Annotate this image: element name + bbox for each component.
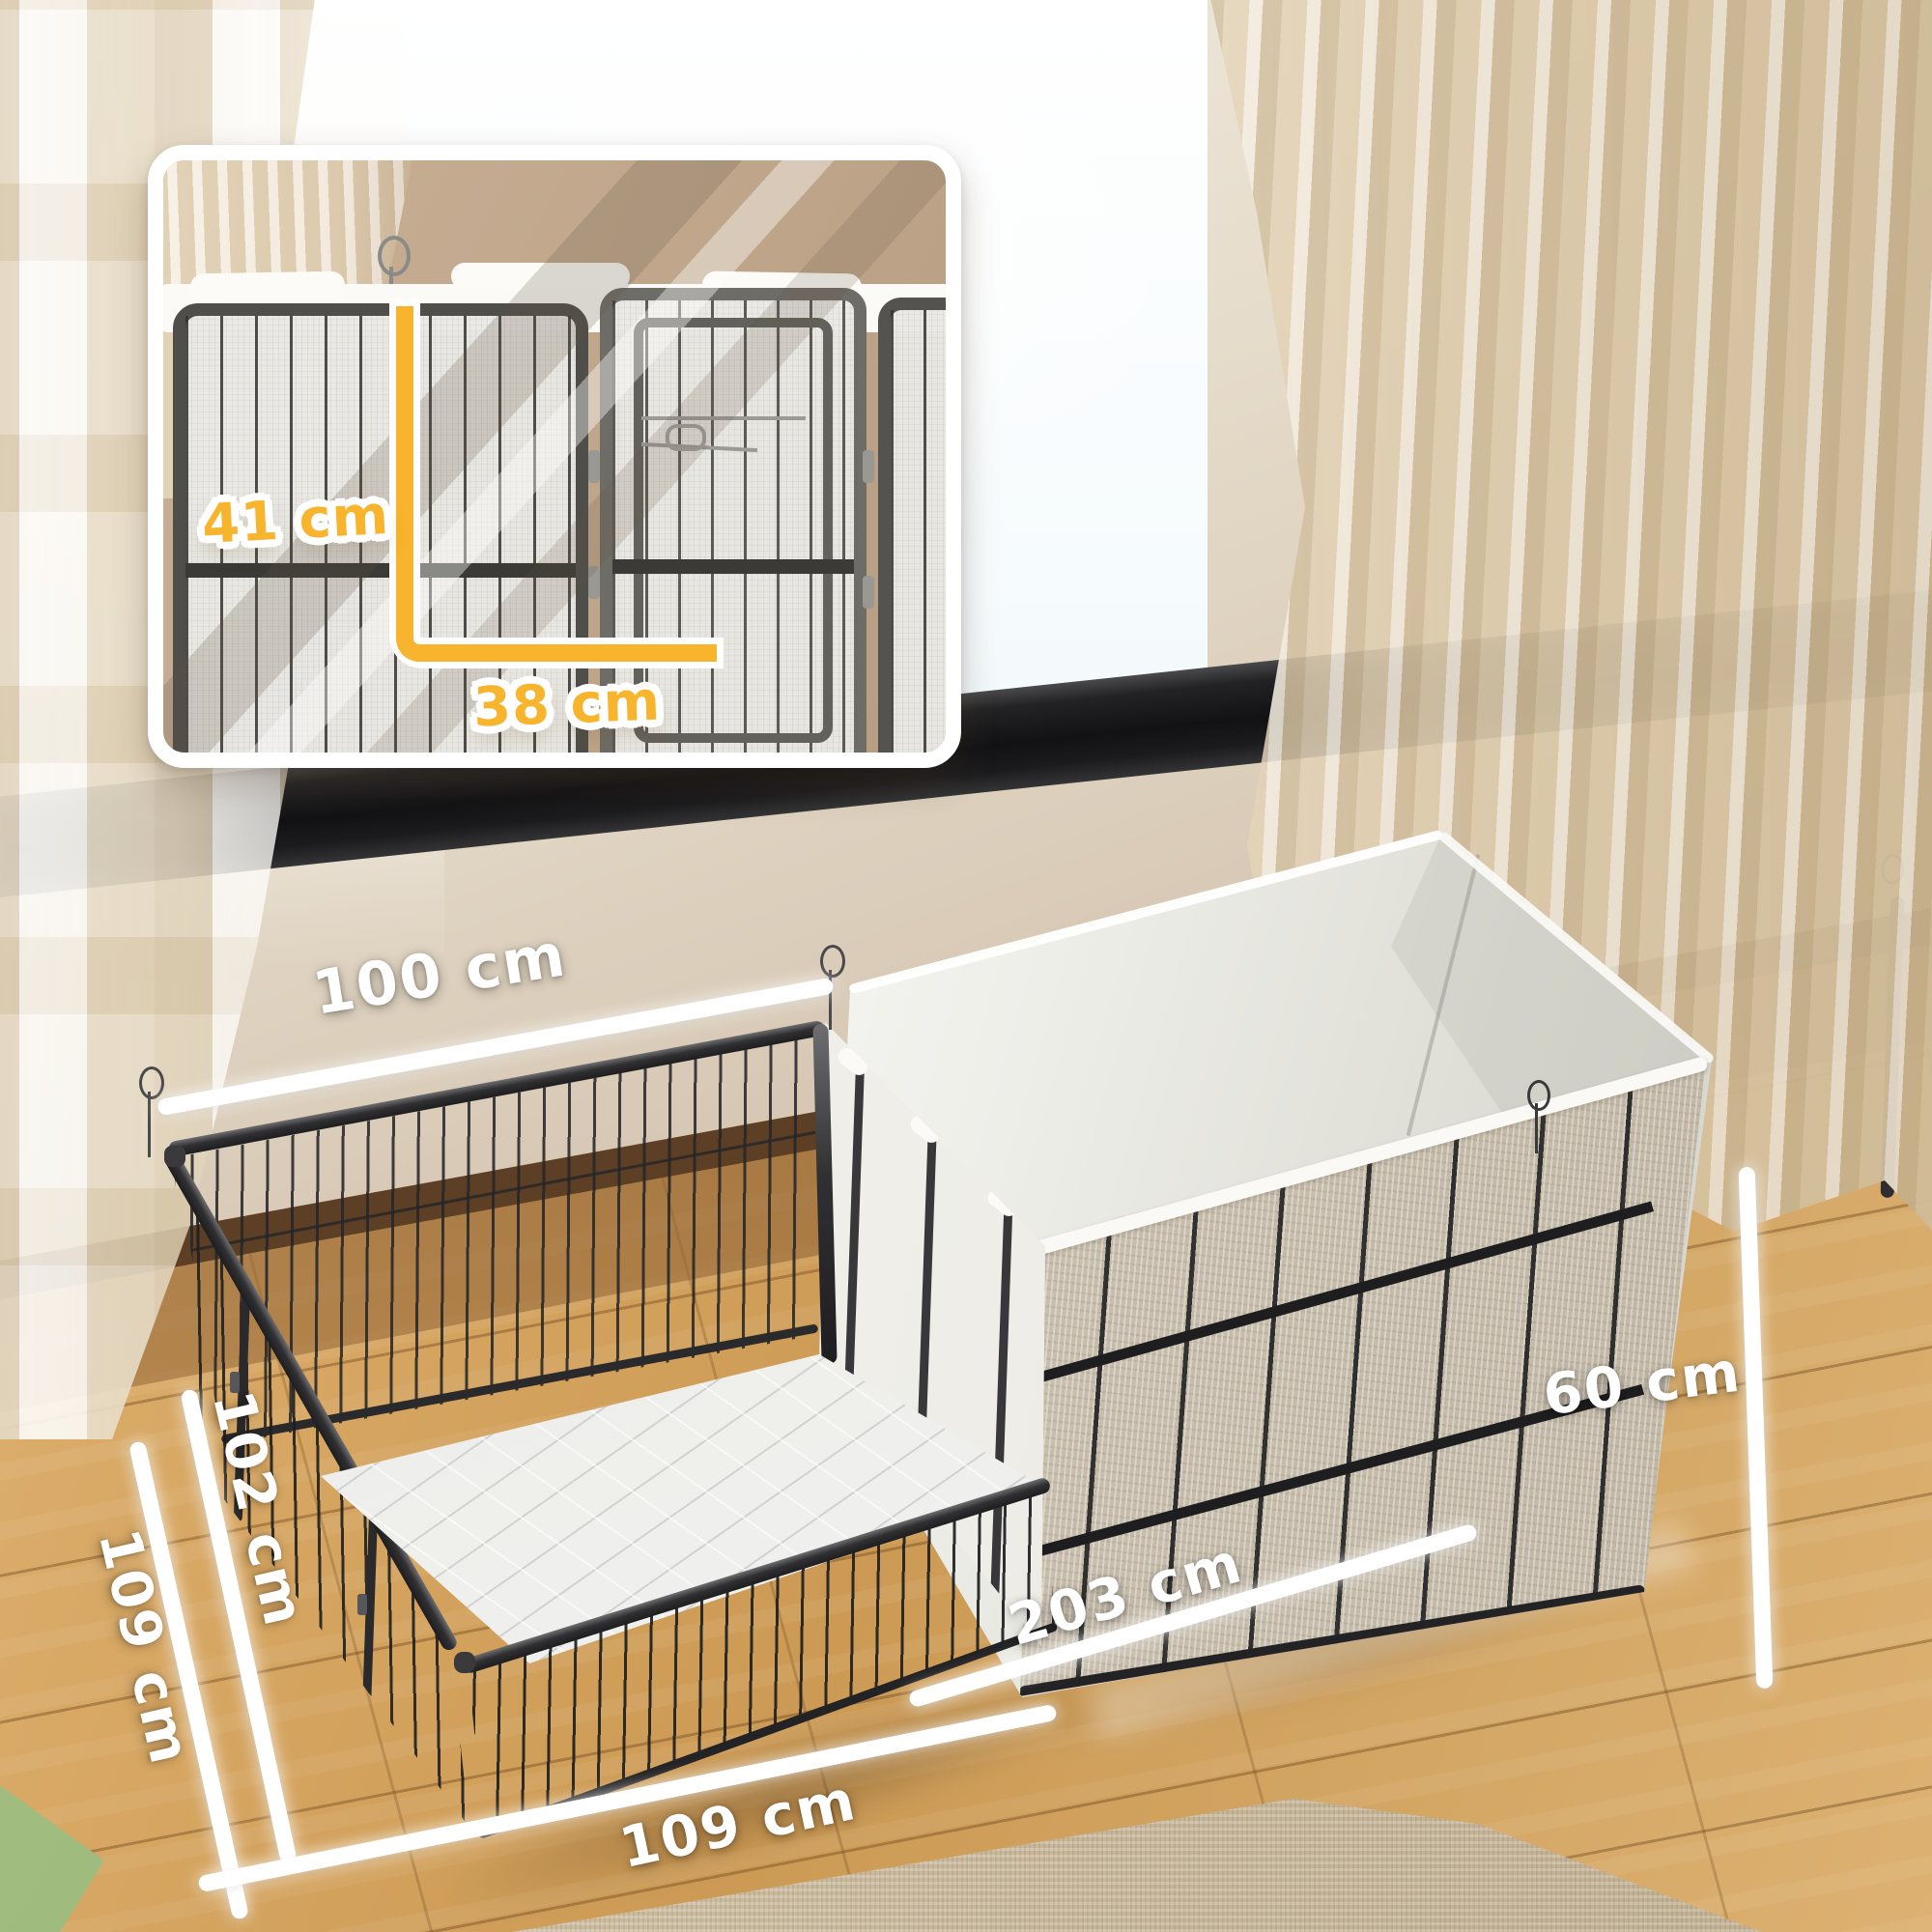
back-panel-horizontal-wire	[188, 1131, 815, 1252]
side-gate-hinge-2	[357, 1594, 367, 1615]
fabric-pen-front-hook-stem	[1535, 1103, 1538, 1153]
inset-width-label: 38 cm	[445, 669, 689, 741]
inset-card: 41 cm 38 cm	[148, 145, 961, 768]
fabric-pen-front-hook-icon	[1527, 1080, 1550, 1111]
inset-dim-L	[396, 306, 717, 662]
left-corner-hook-icon	[139, 1066, 164, 1099]
wire-pen-left-corner	[164, 1146, 185, 1167]
divider-hook-icon	[820, 945, 845, 978]
product-photo-stage: 41 cm 38 cm 100 cm 102 cm 109 cm 109 cm …	[0, 0, 1932, 1932]
left-corner-hook-stem	[148, 1092, 151, 1157]
wire-pen-front-corner	[454, 1652, 475, 1673]
inset-height-label: 41 cm	[173, 483, 417, 558]
